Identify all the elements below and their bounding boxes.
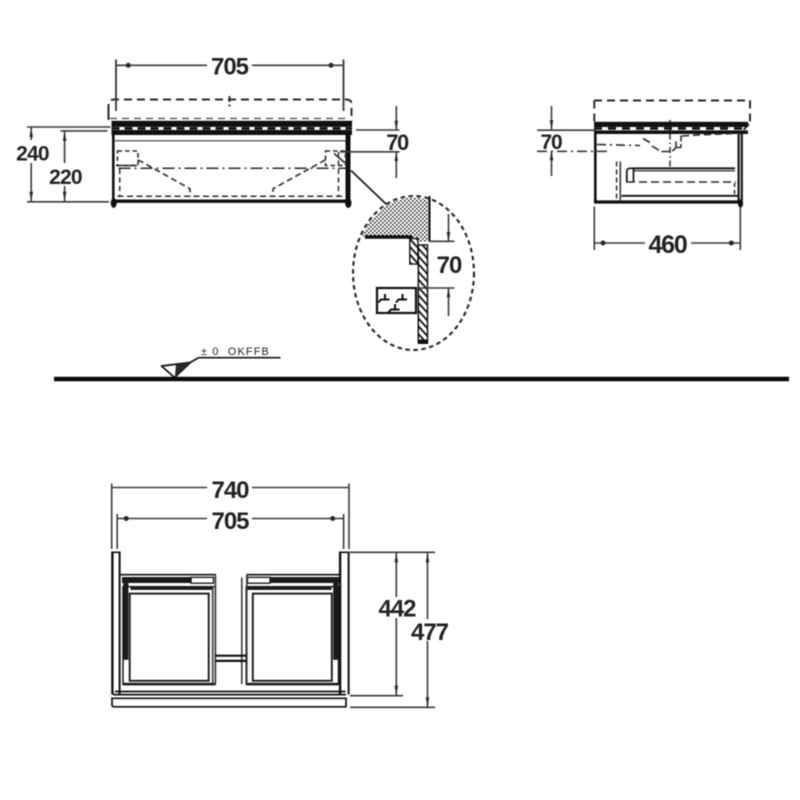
svg-text:705: 705 (211, 508, 249, 535)
svg-text:705: 705 (211, 54, 249, 81)
svg-text:740: 740 (211, 477, 249, 504)
svg-text:460: 460 (648, 231, 686, 259)
svg-text:70: 70 (541, 131, 562, 154)
svg-text:70: 70 (386, 130, 409, 155)
svg-text:240: 240 (16, 143, 49, 166)
svg-text:70: 70 (437, 252, 462, 279)
svg-text:477: 477 (411, 619, 449, 646)
svg-text:± 0 OKFFB: ± 0 OKFFB (201, 346, 270, 358)
svg-text:220: 220 (49, 166, 82, 189)
